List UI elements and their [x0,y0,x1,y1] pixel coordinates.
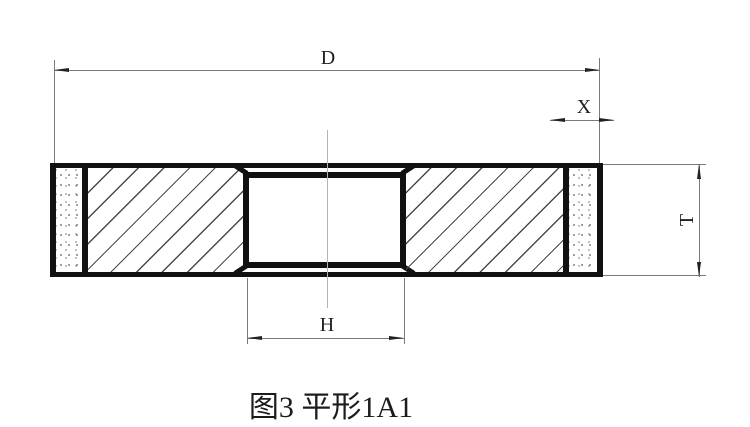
t-extension-line-top [603,164,706,165]
d-extension-line-left [54,60,55,163]
x-arrowhead-left [550,118,565,122]
t-extension-line-bottom [603,275,706,276]
d-extension-line-right [599,58,600,163]
t-arrowhead-bottom [697,262,701,277]
thickness-label: T [676,209,698,231]
h-extension-line-right [404,278,405,344]
h-arrowhead-right [389,336,404,340]
d-arrowhead-left [54,68,69,72]
centerline [327,130,328,308]
d-dimension-line [54,70,600,71]
h-dimension-line [247,338,404,339]
core-hatch-left [88,168,243,272]
t-arrowhead-top [697,164,701,179]
figure-caption: 图3 平形1A1 [206,382,456,426]
technical-drawing-canvas: D X T H 图3 平形1A1 [0,0,750,427]
abrasive-band-left [56,168,82,272]
t-dimension-line [699,164,700,277]
bore-label: H [316,315,338,335]
abrasive-band-right [569,168,597,272]
bore-hole [243,172,406,268]
x-arrowhead-right [599,118,614,122]
d-arrowhead-right [585,68,600,72]
abrasive-depth-label: X [573,97,595,117]
h-arrowhead-left [247,336,262,340]
diameter-label: D [317,48,339,68]
core-hatch-right [406,168,563,272]
h-extension-line-left [247,278,248,344]
